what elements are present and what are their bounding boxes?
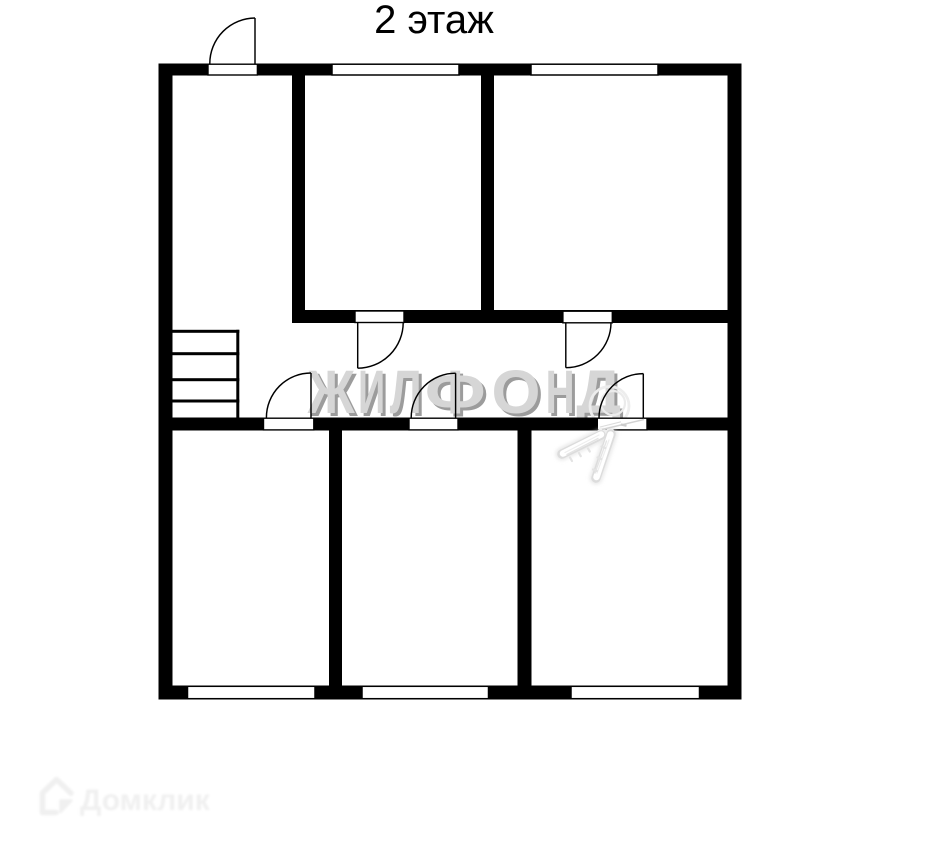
svg-text:2 этаж: 2 этаж xyxy=(374,0,494,42)
svg-text:Л: Л xyxy=(390,358,422,426)
svg-text:Ж: Ж xyxy=(307,358,356,426)
svg-text:О: О xyxy=(492,358,541,426)
svg-text:Домклик: Домклик xyxy=(80,784,211,817)
